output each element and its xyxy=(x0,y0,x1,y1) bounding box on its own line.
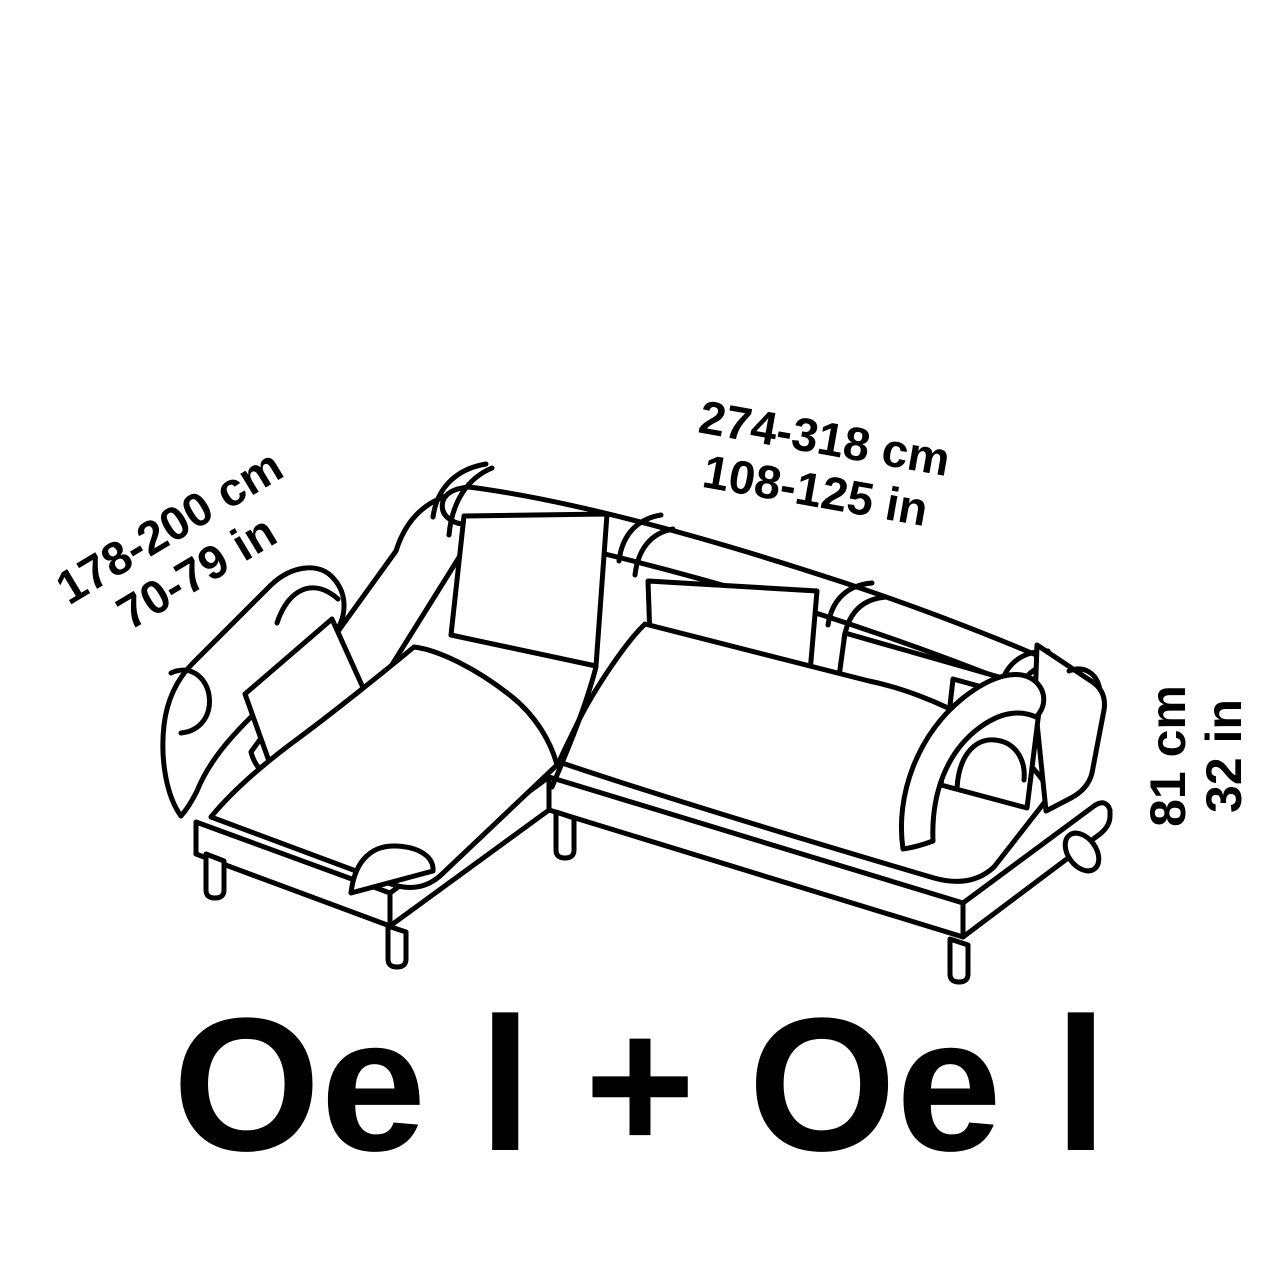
sofa-leg xyxy=(388,926,406,967)
model-code-caption: Oe l + Oe l xyxy=(0,990,1280,1180)
back-pillow-corner xyxy=(451,514,607,666)
dimension-label-overall-height: 81 cm 32 in xyxy=(1140,631,1252,881)
dimension-value-in: 32 in xyxy=(1196,631,1252,881)
sofa-leg xyxy=(950,939,968,982)
sofa-leg xyxy=(556,812,574,858)
dimension-value-cm: 81 cm xyxy=(1140,631,1196,881)
sofa-leg xyxy=(206,854,224,898)
diagram-canvas: 178-200 cm 70-79 in 274-318 cm 108-125 i… xyxy=(0,0,1280,1280)
